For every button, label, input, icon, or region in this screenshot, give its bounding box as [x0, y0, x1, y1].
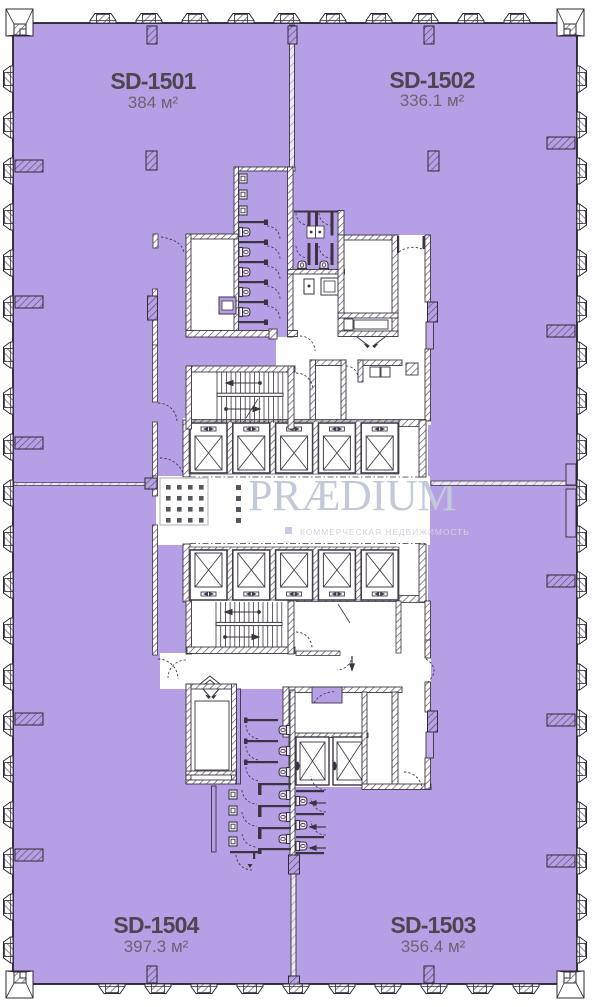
svg-text:SD-1503: SD-1503	[390, 912, 475, 938]
svg-text:356.4 м²: 356.4 м²	[401, 937, 466, 956]
svg-text:384 м²: 384 м²	[128, 93, 179, 112]
svg-text:КОММЕРЧЕСКАЯ НЕДВИЖИМОСТЬ: КОММЕРЧЕСКАЯ НЕДВИЖИМОСТЬ	[300, 527, 470, 537]
svg-text:SD-1504: SD-1504	[113, 912, 199, 938]
svg-text:397.3 м²: 397.3 м²	[124, 937, 189, 956]
svg-text:SD-1502: SD-1502	[389, 67, 474, 93]
svg-text:SD-1501: SD-1501	[110, 68, 196, 94]
svg-text:336.1 м²: 336.1 м²	[400, 91, 465, 110]
svg-text:PRÆDIUM: PRÆDIUM	[248, 471, 456, 520]
